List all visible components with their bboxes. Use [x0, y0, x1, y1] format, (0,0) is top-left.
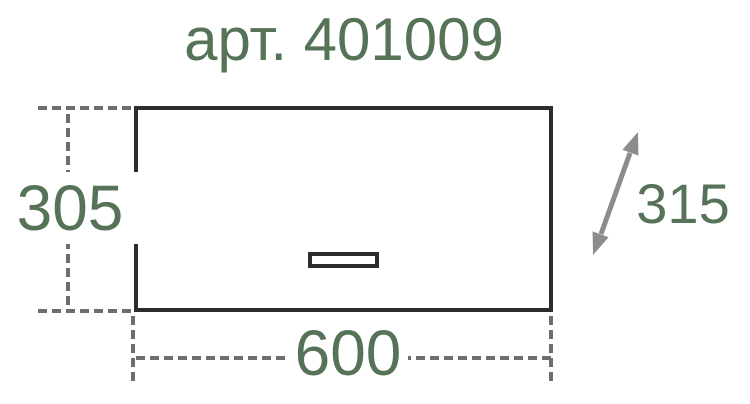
- height-extension-line-top: [38, 106, 136, 110]
- depth-dimension-label: 315: [628, 176, 738, 232]
- article-number-title: арт. 401009: [134, 10, 554, 70]
- width-dimension-label: 600: [288, 317, 408, 389]
- door-handle: [308, 252, 379, 268]
- product-dimension-diagram: арт. 401009 305 600 315: [0, 0, 750, 404]
- height-dimension-label: 305: [0, 172, 140, 244]
- width-extension-line-right: [549, 316, 553, 386]
- width-extension-line-left: [131, 316, 135, 386]
- height-extension-line-bottom: [38, 309, 136, 313]
- cabinet-front-outline: [134, 106, 553, 312]
